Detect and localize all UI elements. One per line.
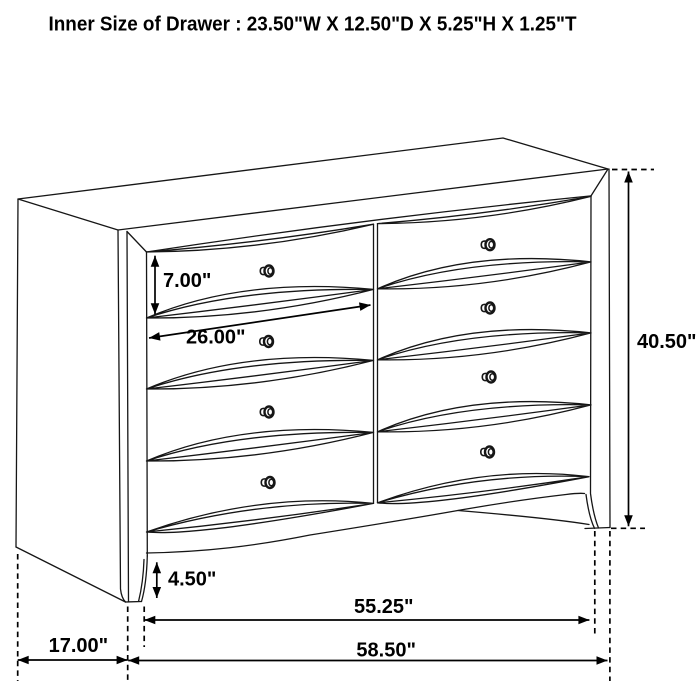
svg-text:17.00": 17.00" <box>49 635 109 657</box>
svg-text:Inner Size of Drawer : 23.50"W: Inner Size of Drawer : 23.50"W X 12.50"D… <box>49 14 577 36</box>
svg-text:55.25": 55.25" <box>354 596 414 618</box>
svg-text:4.50": 4.50" <box>168 569 216 591</box>
svg-text:58.50": 58.50" <box>356 640 416 662</box>
svg-text:26.00": 26.00" <box>186 327 246 349</box>
svg-text:7.00": 7.00" <box>163 270 211 292</box>
svg-text:40.50": 40.50" <box>637 331 697 353</box>
